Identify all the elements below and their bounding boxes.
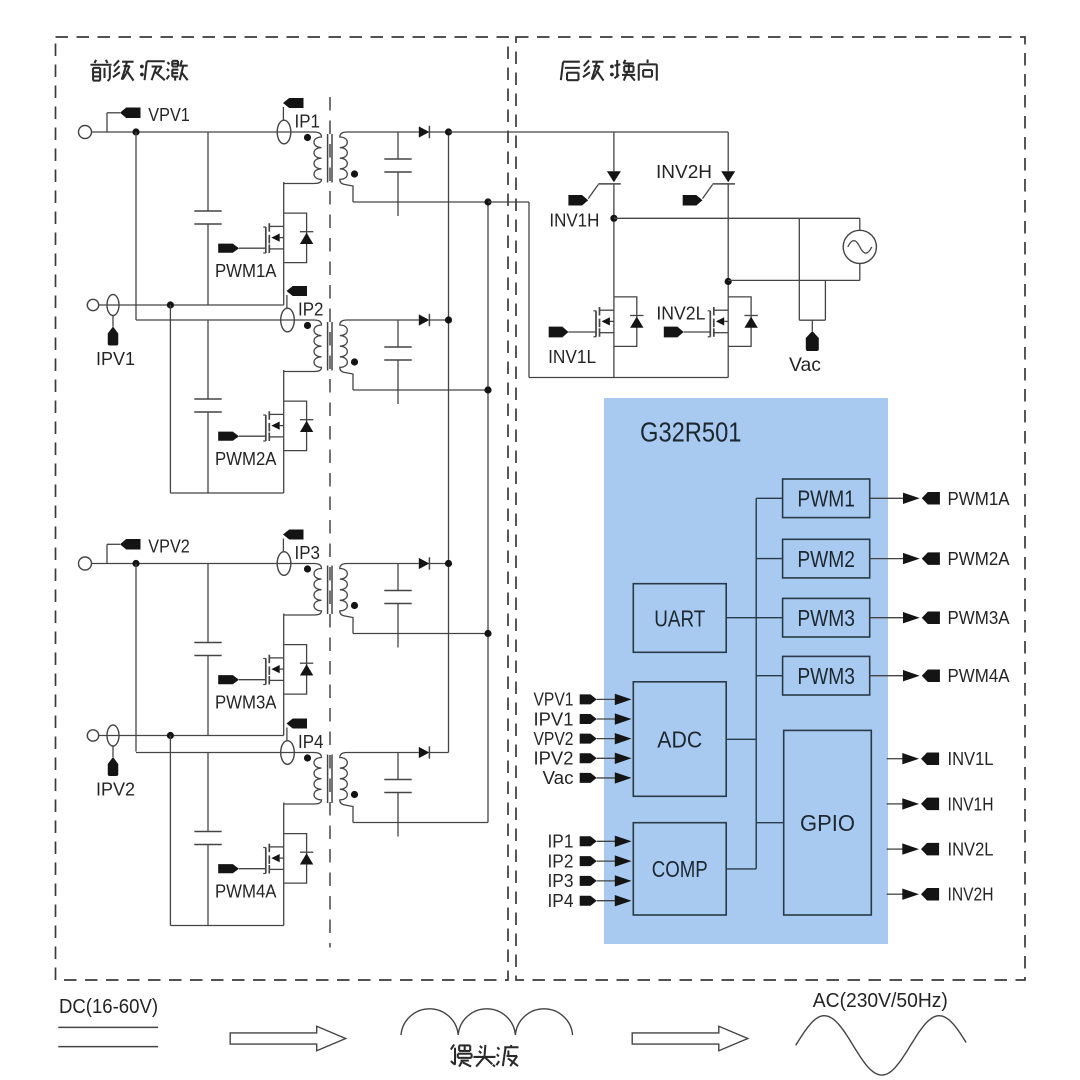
svg-text:IPV1: IPV1	[96, 348, 135, 369]
svg-text:PWM3: PWM3	[797, 605, 855, 631]
svg-text:INV2L: INV2L	[948, 839, 994, 860]
svg-text:PWM2A: PWM2A	[215, 448, 277, 469]
svg-text:INV2H: INV2H	[948, 884, 994, 905]
svg-text:Vac: Vac	[789, 354, 821, 376]
svg-text:PWM1: PWM1	[797, 486, 855, 512]
svg-text:PWM3: PWM3	[797, 663, 855, 689]
svg-text:IP3: IP3	[295, 542, 321, 563]
svg-text:IP2: IP2	[548, 850, 574, 871]
svg-text:INV1L: INV1L	[948, 748, 994, 769]
svg-text:PWM1A: PWM1A	[215, 260, 277, 281]
svg-text:IP4: IP4	[548, 890, 574, 911]
svg-text:IPV2: IPV2	[96, 779, 135, 800]
svg-text:G32R501: G32R501	[640, 417, 742, 448]
svg-text:PWM4A: PWM4A	[215, 881, 277, 902]
svg-text:IPV2: IPV2	[534, 748, 574, 769]
svg-text:PWM1A: PWM1A	[948, 488, 1011, 509]
svg-text:IP2: IP2	[298, 299, 324, 320]
svg-text:DC(16-60V): DC(16-60V)	[59, 996, 158, 1018]
svg-text:INV2H: INV2H	[656, 161, 712, 182]
svg-text:Vac: Vac	[543, 767, 574, 788]
svg-text:GPIO: GPIO	[800, 810, 855, 836]
svg-text:PWM2: PWM2	[797, 546, 855, 572]
svg-text:VPV2: VPV2	[148, 536, 190, 557]
svg-text:PWM3A: PWM3A	[215, 692, 277, 713]
svg-text:INV1H: INV1H	[549, 210, 599, 231]
svg-text:AC(230V/50Hz): AC(230V/50Hz)	[813, 990, 948, 1012]
svg-text:VPV1: VPV1	[148, 104, 190, 125]
svg-text:IP1: IP1	[295, 111, 321, 132]
svg-text:IP4: IP4	[298, 731, 324, 752]
svg-text:INV1L: INV1L	[548, 346, 596, 367]
svg-text:IPV1: IPV1	[534, 708, 574, 729]
svg-text:IP1: IP1	[548, 831, 574, 852]
svg-text:PWM4A: PWM4A	[948, 665, 1011, 686]
svg-text:VPV2: VPV2	[534, 728, 574, 749]
svg-text:ADC: ADC	[657, 726, 702, 752]
svg-text:UART: UART	[654, 605, 705, 631]
svg-text:PWM3A: PWM3A	[948, 607, 1011, 628]
svg-text:COMP: COMP	[652, 856, 708, 882]
svg-text:IP3: IP3	[548, 870, 574, 891]
svg-text:PWM2A: PWM2A	[948, 548, 1011, 569]
svg-text:INV1H: INV1H	[948, 793, 994, 814]
svg-text:VPV1: VPV1	[534, 689, 574, 710]
svg-text:INV2L: INV2L	[656, 303, 705, 324]
